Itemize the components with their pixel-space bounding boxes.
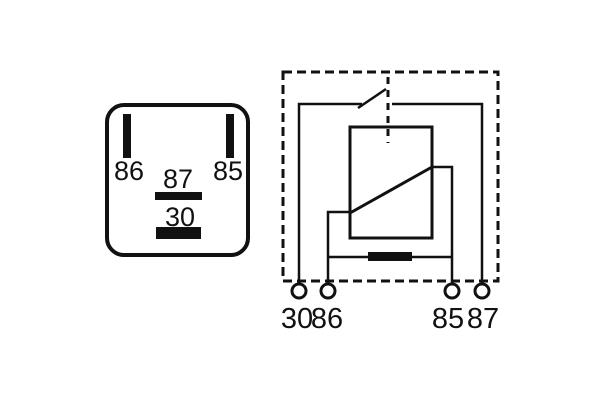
relay-diagram: 86 85 87 30 [0, 0, 600, 400]
terminal-85-post [445, 284, 459, 298]
pin-85-blade [226, 114, 234, 158]
pin-85-label: 85 [213, 156, 243, 186]
terminal-85-label: 85 [432, 303, 464, 335]
wire-terminal-86 [328, 212, 350, 284]
coil-box [350, 127, 432, 238]
pinout-view: 86 85 87 30 [107, 105, 248, 255]
schematic-view: 30 86 85 87 [281, 72, 499, 335]
terminal-30-post [292, 284, 306, 298]
relay-diagram-svg: 86 85 87 30 [0, 0, 600, 400]
terminal-30-label: 30 [281, 303, 313, 335]
pin-30-label: 30 [165, 202, 195, 232]
pin-86-blade [123, 114, 131, 158]
terminal-87-post [475, 284, 489, 298]
terminal-87-label: 87 [467, 303, 499, 335]
pin-86-label: 86 [114, 156, 144, 186]
terminal-86-label: 86 [311, 303, 343, 335]
coil-diagonal [350, 167, 432, 213]
pin-87-label: 87 [163, 164, 193, 194]
wire-terminal-85 [432, 167, 452, 284]
terminal-86-post [321, 284, 335, 298]
switch-contact-blade [358, 89, 386, 108]
resistor-element [368, 252, 412, 261]
